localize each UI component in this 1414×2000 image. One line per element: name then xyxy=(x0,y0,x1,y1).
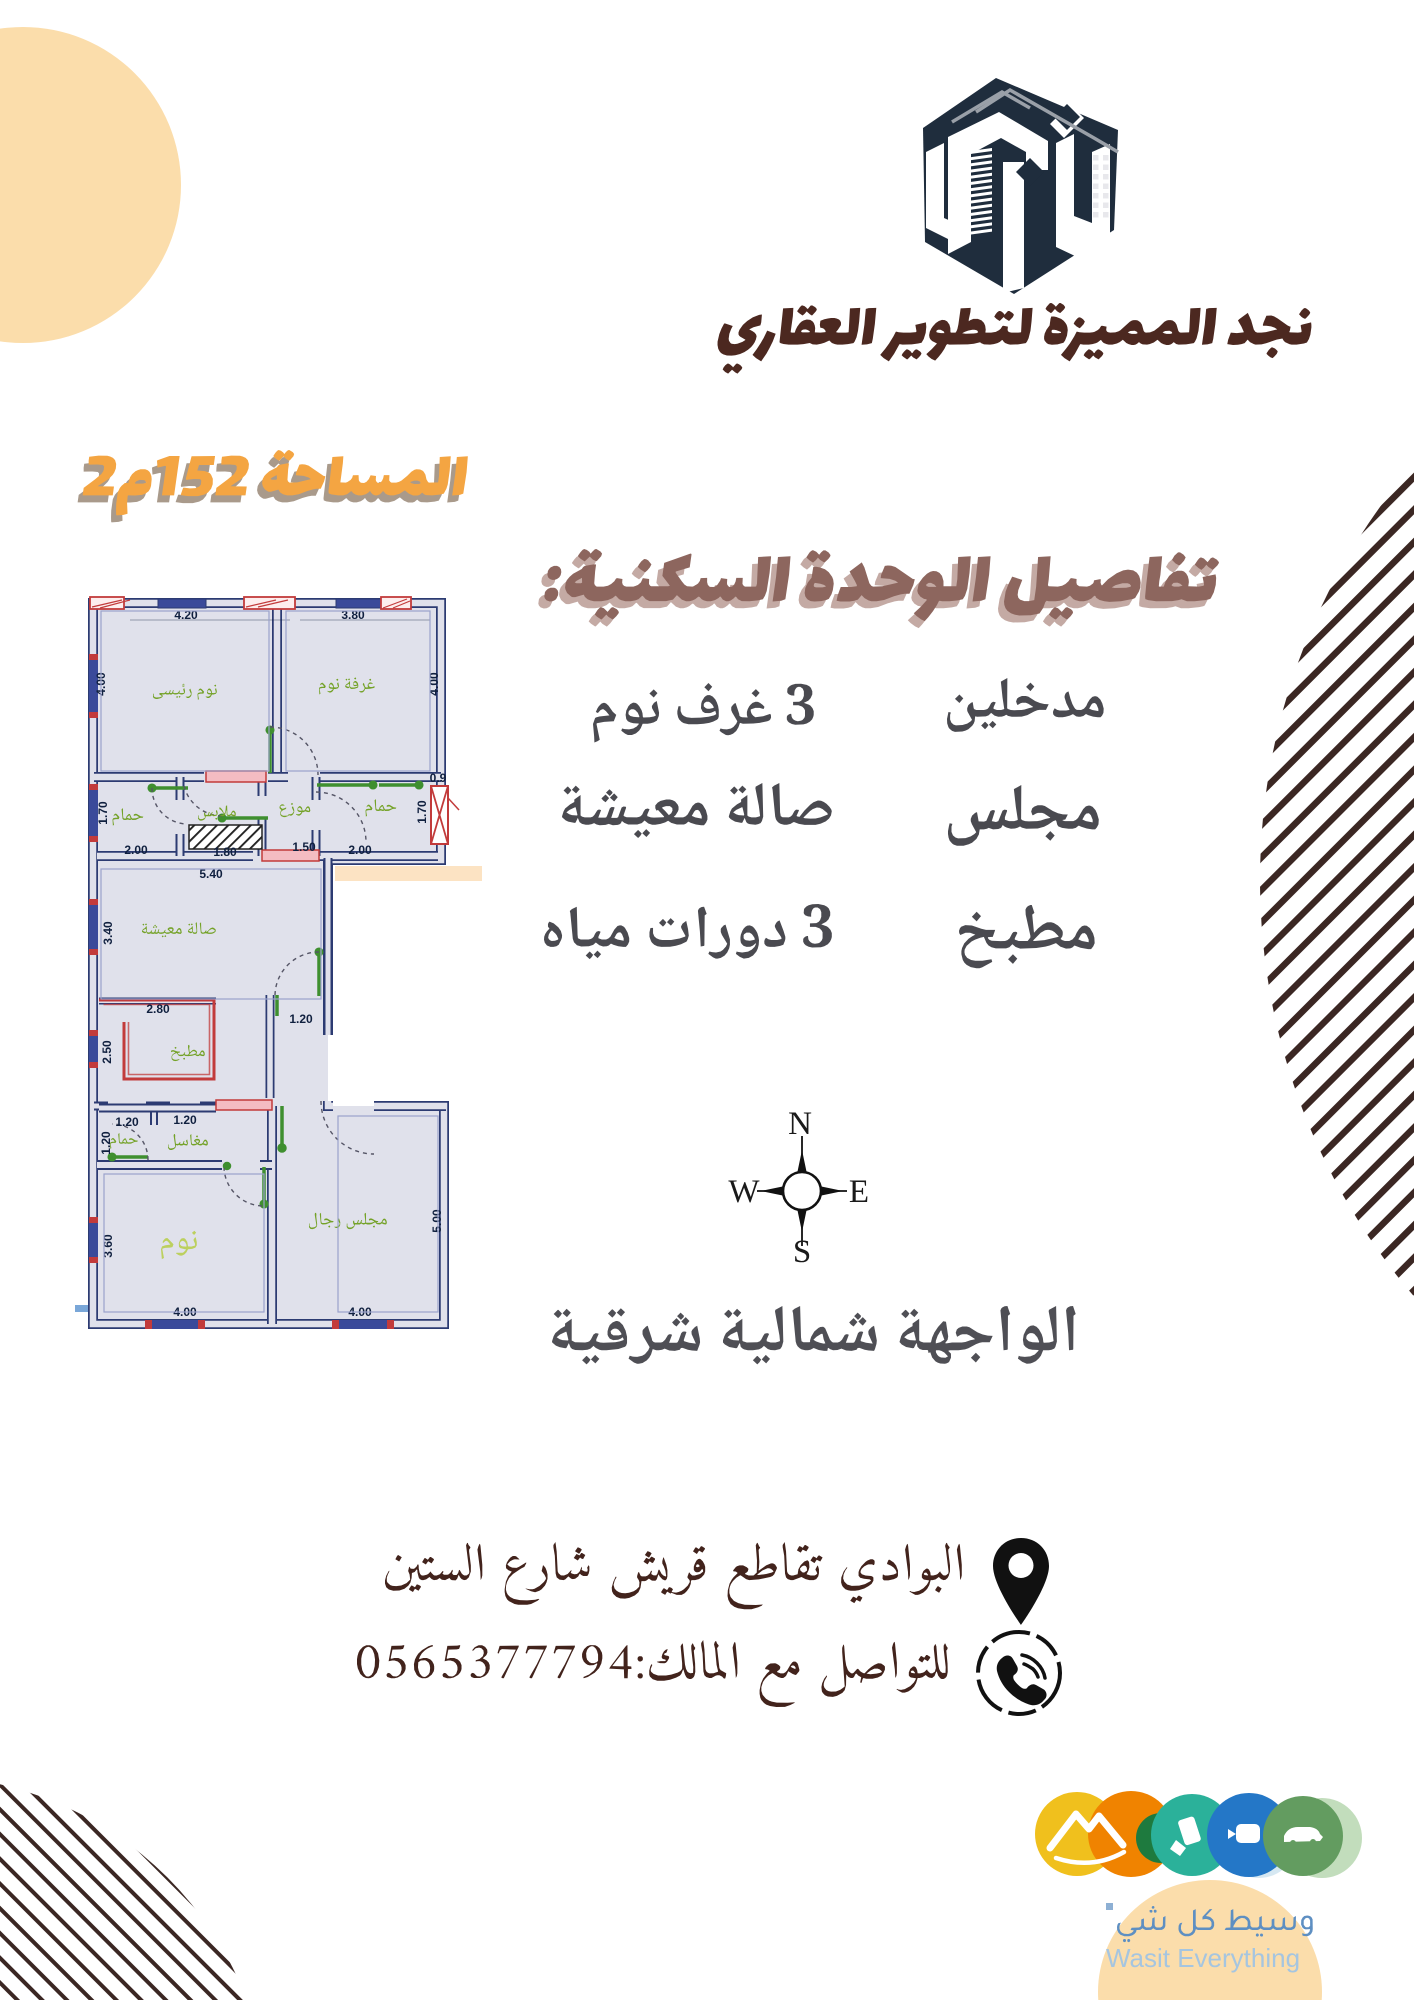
svg-text:Wasit Everything: Wasit Everything xyxy=(1106,1943,1300,1973)
svg-text:3.40: 3.40 xyxy=(101,921,115,945)
svg-text:1.20: 1.20 xyxy=(173,1113,197,1127)
svg-text:S: S xyxy=(793,1234,811,1270)
svg-text:E: E xyxy=(849,1174,869,1210)
svg-text:0.9: 0.9 xyxy=(430,771,447,785)
svg-text:2.80: 2.80 xyxy=(146,1002,170,1016)
svg-text:1.20: 1.20 xyxy=(289,1012,313,1026)
svg-text:5.00: 5.00 xyxy=(430,1209,444,1233)
svg-text:N: N xyxy=(788,1106,812,1142)
svg-text:W: W xyxy=(728,1174,760,1210)
svg-text:1.50: 1.50 xyxy=(292,840,316,854)
svg-text:2.00: 2.00 xyxy=(348,843,372,857)
svg-text:1.80: 1.80 xyxy=(213,845,237,859)
svg-text:1.70: 1.70 xyxy=(96,801,110,825)
svg-text:2.50: 2.50 xyxy=(100,1040,114,1064)
svg-text:1.20: 1.20 xyxy=(115,1115,139,1129)
svg-text:4.00: 4.00 xyxy=(427,672,441,696)
svg-text:3.60: 3.60 xyxy=(101,1234,115,1258)
svg-text:2.00: 2.00 xyxy=(124,843,148,857)
svg-text:1.70: 1.70 xyxy=(415,800,429,824)
